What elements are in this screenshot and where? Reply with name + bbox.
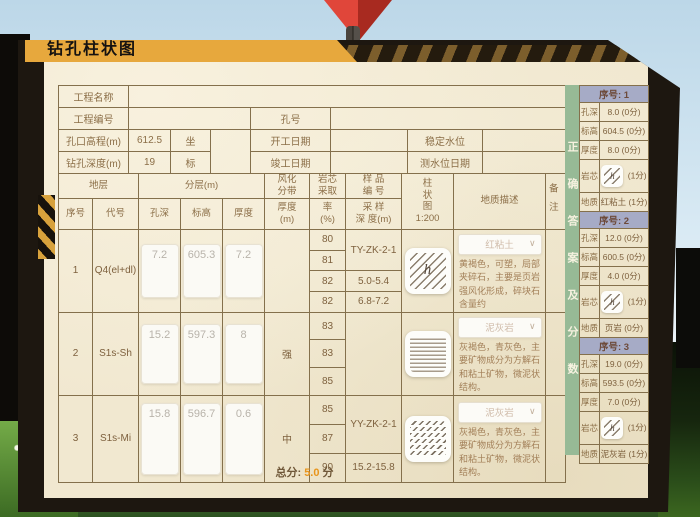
core-rate-cell: 83 (310, 312, 346, 340)
thickness-input-cell: 8 (223, 312, 265, 395)
answer-label: 孔深 (580, 355, 600, 374)
answer-group-title: 序号: 1 (580, 86, 649, 103)
sample-no-cell: YY-ZK-2-1 (346, 395, 402, 453)
answer-core-pattern-cell: h (1分) (600, 412, 649, 445)
answer-value: 604.5 (0分) (600, 122, 649, 141)
rock-pattern-hatch-h-icon: h (601, 165, 623, 187)
core-rate-cell: 81 (310, 250, 346, 271)
note-cell (546, 312, 566, 395)
rock-pattern-marl-icon[interactable] (405, 416, 451, 462)
core-rate-cell: 85 (310, 368, 346, 396)
answer-label: 厚度 (580, 393, 600, 412)
marker-right-half (358, 0, 392, 42)
rock-pattern-hatch-h-icon: h (601, 291, 623, 313)
rock-pattern-hatch-h-icon[interactable]: h (405, 248, 451, 294)
h-glyph: h (601, 165, 623, 187)
drill-rig-tip (346, 26, 360, 42)
sample-no-header: 样 品编 号 (346, 174, 402, 199)
project-no-label: 工程编号 (59, 108, 129, 130)
depth-label: 钻孔深度(m) (59, 152, 129, 174)
core-rate-cell: 83 (310, 340, 346, 368)
sample-depth-cell: 5.0-5.4 (346, 271, 402, 292)
borehole-grid-table: 地层 分层(m) 风化分带 岩芯采取 样 品编 号 柱状 图1:200 地质描述… (58, 173, 566, 483)
answer-label: 标高 (580, 248, 600, 267)
total-score-label: 总分: (275, 467, 301, 479)
answer-group-title: 序号: 3 (580, 338, 649, 355)
answer-label: 标高 (580, 122, 600, 141)
start-date-value (331, 130, 408, 152)
elevation-label: 孔口高程(m) (59, 130, 129, 152)
marl-pattern (410, 421, 446, 457)
borehole-dialog-panel: ✕ 工程名称 工程编号 孔号 孔口高程(m) 612.5 坐 开工日期 (18, 40, 680, 512)
core-recovery-header: 岩芯采取 (310, 174, 346, 199)
answer-value: 8.0 (0分) (600, 141, 649, 160)
sample-depth-header: 采 样深 度(m) (346, 198, 402, 229)
hole-depth-input-cell: 7.2 (139, 229, 181, 312)
answer-core-pattern-cell: h (1分) (600, 286, 649, 319)
column-diagram-header: 柱状 图1:200 (402, 174, 454, 230)
answer-label: 岩芯 (580, 160, 600, 193)
core-rate-cell: 85 (310, 395, 346, 424)
h-glyph: h (601, 291, 623, 313)
answer-panel: 序号: 1 孔深 8.0 (0分) 标高 604.5 (0分) 厚度 8.0 (… (579, 85, 649, 464)
seq-cell: 1 (59, 229, 93, 312)
elevation-input[interactable]: 597.3 (183, 324, 221, 384)
total-score: 总分: 5.0 分 (44, 464, 565, 480)
answer-label: 地质 (580, 445, 600, 464)
answer-label: 厚度 (580, 267, 600, 286)
code-cell: Q4(el+dl) (93, 229, 139, 312)
answer-value: 12.0 (0分) (600, 229, 649, 248)
end-date-label: 竣工日期 (251, 152, 331, 174)
end-date-value (331, 152, 408, 174)
hole-depth-input-cell: 15.2 (139, 312, 181, 395)
project-no-value (129, 108, 251, 130)
weathering-cell (265, 229, 310, 312)
answer-label: 孔深 (580, 229, 600, 248)
hole-no-label: 孔号 (251, 108, 331, 130)
core-rate-cell: 80 (310, 229, 346, 250)
rock-type-select[interactable]: 泥灰岩 ∨ (458, 317, 542, 338)
rock-pattern-horizontal-lines-icon[interactable] (405, 331, 451, 377)
hole-depth-input[interactable]: 15.2 (141, 324, 179, 384)
answer-label: 岩芯 (580, 412, 600, 445)
coord-label-bottom: 标 (171, 152, 211, 174)
level-date-label: 测水位日期 (408, 152, 483, 174)
h-glyph: h (601, 417, 623, 439)
elevation-input[interactable]: 605.3 (183, 244, 221, 298)
answer-value: 7.0 (0分) (600, 393, 649, 412)
seq-header: 序号 (59, 198, 93, 229)
column-pattern-cell (402, 312, 454, 395)
form-paper: 工程名称 工程编号 孔号 孔口高程(m) 612.5 坐 开工日期 稳定水位 钻 (44, 62, 648, 498)
geo-desc-cell: 红粘土 ∨ 黄褐色，可塑，局部夹碎石，主要是页岩强风化形成，碎块石含量约 (454, 229, 546, 312)
start-date-label: 开工日期 (251, 130, 331, 152)
elevation-input-cell: 605.3 (181, 229, 223, 312)
project-name-label: 工程名称 (59, 86, 129, 108)
chevron-down-icon: ∨ (529, 321, 536, 332)
answer-value: 泥灰岩 (1分) (600, 445, 649, 464)
elevation-input-cell: 597.3 (181, 312, 223, 395)
answer-label: 地质 (580, 319, 600, 338)
answer-value: 4.0 (0分) (600, 267, 649, 286)
answer-core-pattern-cell: h (1分) (600, 160, 649, 193)
seq-cell: 2 (59, 312, 93, 395)
code-header: 代号 (93, 198, 139, 229)
answer-label: 厚度 (580, 141, 600, 160)
thickness-header: 厚度 (223, 198, 265, 229)
elevation-value: 612.5 (129, 130, 171, 152)
weathering-header: 风化分带 (265, 174, 310, 199)
weathering-cell: 强 (265, 312, 310, 395)
elevation-header: 标高 (181, 198, 223, 229)
answer-value: 600.5 (0分) (600, 248, 649, 267)
weathering-thickness-header: 厚度(m) (265, 198, 310, 229)
hole-depth-header: 孔深 (139, 198, 181, 229)
chevron-down-icon: ∨ (529, 238, 536, 249)
column-pattern-cell: h (402, 229, 454, 312)
h-glyph: h (405, 248, 451, 294)
answer-value: 页岩 (0分) (600, 319, 649, 338)
answer-score: (1分) (628, 170, 647, 180)
sample-depth-cell: 6.8-7.2 (346, 292, 402, 313)
rock-type-select[interactable]: 泥灰岩 ∨ (458, 402, 542, 423)
hole-no-value (331, 108, 566, 130)
answer-label: 标高 (580, 374, 600, 393)
answer-value: 8.0 (0分) (600, 103, 649, 122)
note-header: 备注 (546, 174, 566, 230)
level-date-value (483, 152, 566, 174)
chevron-down-icon: ∨ (529, 406, 536, 417)
core-rate-cell: 82 (310, 292, 346, 313)
sample-no-cell: TY-ZK-2-1 (346, 229, 402, 271)
sample-no-cell (346, 312, 402, 395)
layering-header: 分层(m) (139, 174, 265, 199)
thickness-input-cell: 7.2 (223, 229, 265, 312)
stable-level-value (483, 130, 566, 152)
answer-label: 孔深 (580, 103, 600, 122)
answer-score: (1分) (628, 422, 647, 432)
answer-label: 岩芯 (580, 286, 600, 319)
geo-desc-cell: 泥灰岩 ∨ 灰褐色，青灰色，主要矿物成分为方解石和粘土矿物，微泥状结构。 (454, 312, 546, 395)
answer-score: (1分) (628, 296, 647, 306)
coord-label-top: 坐 (171, 130, 211, 152)
rock-pattern-hatch-h-icon: h (601, 417, 623, 439)
core-rate-cell: 87 (310, 424, 346, 453)
code-cell: S1s-Sh (93, 312, 139, 395)
geo-description: 灰褐色，青灰色，主要矿物成分为方解石和粘土矿物，微泥状结构。 (454, 341, 545, 395)
thickness-input[interactable]: 8 (225, 324, 263, 384)
coord-value (211, 130, 251, 174)
answers-strip: 正确答案及分数 (565, 85, 579, 455)
core-rate-cell: 82 (310, 271, 346, 292)
stable-level-label: 稳定水位 (408, 130, 483, 152)
horizontal-lines-pattern (410, 336, 446, 372)
answer-group-title: 序号: 2 (580, 212, 649, 229)
rock-type-select[interactable]: 红粘土 ∨ (458, 234, 542, 255)
answer-value: 19.0 (0分) (600, 355, 649, 374)
hazard-stripe-patch (38, 195, 55, 259)
total-score-value: 5.0 (304, 467, 319, 479)
rate-header: 率(%) (310, 198, 346, 229)
answer-value: 593.5 (0分) (600, 374, 649, 393)
answer-label: 地质 (580, 193, 600, 212)
answer-value: 红粘土 (1分) (600, 193, 649, 212)
thickness-input[interactable]: 7.2 (225, 244, 263, 298)
depth-value: 19 (129, 152, 171, 174)
geo-desc-header: 地质描述 (454, 174, 546, 230)
geo-description: 黄褐色，可塑，局部夹碎石，主要是页岩强风化形成，碎块石含量约 (454, 258, 545, 312)
hole-depth-input[interactable]: 7.2 (141, 244, 179, 298)
note-cell (546, 229, 566, 312)
answers-strip-label: 正确答案及分数 (564, 141, 580, 400)
project-info-table: 工程名称 工程编号 孔号 孔口高程(m) 612.5 坐 开工日期 稳定水位 钻 (58, 85, 566, 174)
strata-header: 地层 (59, 174, 139, 199)
right-dark-edge (676, 248, 700, 368)
total-score-unit: 分 (323, 467, 334, 479)
project-name-value (129, 86, 566, 108)
